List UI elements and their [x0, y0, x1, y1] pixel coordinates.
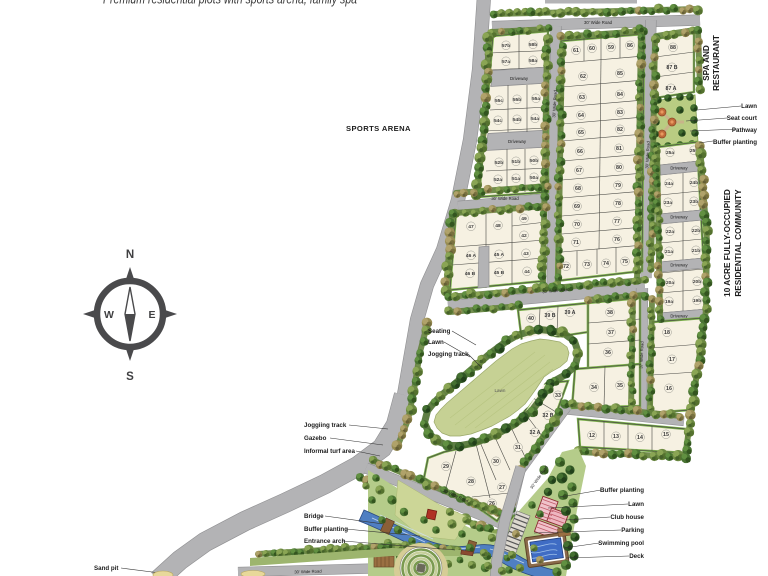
svg-text:46 A: 46 A [466, 253, 477, 259]
svg-text:24b: 24b [690, 180, 698, 186]
svg-text:73: 73 [584, 262, 590, 268]
svg-text:71: 71 [573, 240, 579, 246]
svg-text:Driveway: Driveway [670, 166, 688, 171]
svg-text:Bridge: Bridge [304, 513, 324, 520]
svg-text:19a: 19a [665, 299, 673, 305]
svg-text:20a: 20a [666, 280, 674, 286]
svg-text:SPA AND: SPA AND [702, 45, 711, 81]
svg-text:15: 15 [663, 432, 669, 438]
svg-text:RESIDENTIAL COMMUNITY: RESIDENTIAL COMMUNITY [734, 189, 743, 297]
svg-text:36: 36 [605, 350, 611, 356]
svg-text:54b: 54b [513, 117, 521, 123]
svg-text:50b: 50b [530, 158, 538, 164]
svg-text:80: 80 [616, 165, 622, 171]
svg-text:83: 83 [617, 110, 623, 116]
svg-text:45 A: 45 A [494, 252, 505, 258]
svg-text:55c: 55c [495, 98, 503, 104]
svg-text:Driveway: Driveway [510, 76, 529, 81]
svg-text:23b: 23b [690, 199, 698, 205]
svg-text:W: W [104, 309, 114, 321]
svg-text:SPORTS ARENA: SPORTS ARENA [346, 124, 411, 133]
svg-text:31: 31 [515, 445, 521, 451]
svg-text:22b: 22b [692, 228, 700, 234]
svg-text:48: 48 [495, 223, 501, 229]
svg-text:Club house: Club house [610, 514, 644, 521]
svg-text:Deck: Deck [629, 553, 644, 560]
svg-text:51a: 51a [512, 176, 520, 182]
svg-text:Driveway: Driveway [670, 314, 688, 319]
svg-text:16: 16 [666, 386, 672, 392]
svg-text:27: 27 [499, 485, 505, 491]
svg-text:22a: 22a [666, 229, 674, 235]
svg-text:13: 13 [613, 434, 619, 440]
svg-text:87 A: 87 A [666, 86, 677, 92]
svg-text:24a: 24a [665, 181, 673, 187]
svg-text:79: 79 [615, 183, 621, 189]
svg-text:51b: 51b [512, 159, 520, 165]
svg-text:62: 62 [580, 74, 586, 80]
svg-text:54a: 54a [531, 116, 539, 122]
svg-text:40: 40 [528, 316, 534, 322]
svg-text:Informal turf area: Informal turf area [304, 448, 355, 455]
svg-text:Seat court: Seat court [727, 115, 757, 122]
svg-text:78: 78 [615, 201, 621, 207]
svg-text:34: 34 [591, 385, 597, 391]
svg-text:28: 28 [468, 479, 474, 485]
svg-text:44: 44 [524, 269, 530, 275]
svg-text:Lawn: Lawn [495, 388, 506, 393]
svg-text:86: 86 [627, 43, 633, 49]
svg-text:58a: 58a [529, 58, 537, 64]
svg-text:63: 63 [579, 95, 585, 101]
svg-text:37' Wide Road: 37' Wide Road [639, 341, 645, 369]
svg-text:50a: 50a [530, 175, 538, 181]
svg-text:32 A: 32 A [530, 430, 541, 436]
svg-text:Joggiing track: Joggiing track [304, 422, 347, 429]
svg-text:85: 85 [617, 71, 623, 77]
svg-text:19b: 19b [693, 298, 701, 304]
svg-text:Lawn: Lawn [428, 339, 444, 346]
svg-text:Jogging track: Jogging track [428, 351, 469, 358]
svg-text:46 B: 46 B [465, 271, 476, 277]
svg-text:Swimming pool: Swimming pool [598, 540, 644, 547]
svg-text:Lawn: Lawn [741, 103, 757, 110]
svg-text:30' Wide Road: 30' Wide Road [584, 20, 613, 25]
svg-text:76: 76 [614, 237, 620, 243]
svg-text:55a: 55a [532, 96, 540, 102]
svg-text:38: 38 [607, 310, 613, 316]
svg-text:52a: 52a [494, 177, 502, 183]
svg-text:68: 68 [575, 186, 581, 192]
svg-text:Lawn: Lawn [628, 501, 644, 508]
svg-text:75: 75 [622, 259, 628, 265]
svg-text:29: 29 [443, 464, 449, 470]
svg-text:20b: 20b [693, 279, 701, 285]
svg-text:88: 88 [670, 45, 676, 51]
svg-text:59: 59 [608, 45, 614, 51]
svg-text:60: 60 [589, 46, 595, 52]
svg-text:Entrance arch: Entrance arch [304, 538, 345, 545]
svg-text:49: 49 [521, 216, 527, 222]
svg-text:30: 30 [493, 459, 499, 465]
svg-text:14: 14 [637, 435, 643, 441]
svg-text:Pathway: Pathway [732, 127, 758, 134]
svg-text:39 B: 39 B [544, 313, 555, 319]
svg-text:RESTAURANT: RESTAURANT [712, 35, 721, 91]
svg-text:E: E [148, 309, 155, 321]
svg-text:42: 42 [521, 233, 527, 239]
svg-text:67: 67 [576, 168, 582, 174]
svg-text:N: N [126, 249, 134, 261]
svg-text:66: 66 [577, 149, 583, 155]
svg-text:69: 69 [574, 204, 580, 210]
svg-text:23a: 23a [664, 200, 672, 206]
svg-text:57b: 57b [502, 43, 510, 49]
svg-text:Buffer planting: Buffer planting [304, 526, 348, 533]
svg-text:30' Wide Road: 30' Wide Road [294, 569, 322, 575]
svg-text:17: 17 [669, 357, 675, 363]
svg-text:37: 37 [608, 330, 614, 336]
svg-text:Parking: Parking [621, 527, 644, 534]
svg-text:Driveway: Driveway [508, 139, 527, 144]
svg-text:S: S [126, 371, 134, 383]
svg-text:47: 47 [468, 224, 474, 230]
svg-text:55b: 55b [513, 97, 521, 103]
svg-text:Premium residential plots with: Premium residential plots with sports ar… [103, 0, 357, 7]
svg-text:61: 61 [573, 48, 579, 54]
svg-text:77: 77 [614, 219, 620, 225]
svg-text:65: 65 [578, 130, 584, 136]
svg-text:45 B: 45 B [494, 270, 505, 276]
svg-text:87 B: 87 B [666, 65, 677, 71]
svg-text:Driveway: Driveway [670, 263, 688, 268]
svg-text:21a: 21a [665, 249, 673, 255]
svg-text:58b: 58b [529, 42, 537, 48]
svg-text:30' Wide Road: 30' Wide Road [491, 196, 519, 201]
svg-text:64: 64 [578, 113, 584, 119]
svg-text:70: 70 [574, 222, 580, 228]
svg-text:84: 84 [617, 92, 623, 98]
svg-text:43: 43 [523, 251, 529, 257]
svg-text:72: 72 [563, 264, 569, 270]
svg-text:74: 74 [603, 261, 609, 267]
svg-text:10 ACRE FULLY-OCCUPIED: 10 ACRE FULLY-OCCUPIED [723, 189, 732, 297]
svg-text:Seating: Seating [428, 328, 451, 335]
svg-text:35: 35 [617, 383, 623, 389]
svg-text:Buffer planting: Buffer planting [600, 487, 644, 494]
svg-text:21b: 21b [692, 248, 700, 254]
svg-text:57a: 57a [502, 59, 510, 65]
svg-text:18: 18 [664, 330, 670, 336]
svg-text:Gazebo: Gazebo [304, 435, 327, 442]
svg-text:39 A: 39 A [565, 310, 576, 316]
svg-text:33: 33 [555, 393, 561, 399]
svg-text:Sand pit: Sand pit [94, 565, 118, 572]
svg-text:Driveway: Driveway [670, 215, 688, 220]
svg-text:12: 12 [589, 433, 595, 439]
svg-text:54c: 54c [494, 118, 502, 124]
svg-text:82: 82 [617, 127, 623, 133]
svg-text:52b: 52b [495, 160, 503, 166]
svg-text:25a: 25a [666, 150, 674, 156]
svg-text:Buffer planting: Buffer planting [713, 139, 757, 146]
svg-text:81: 81 [616, 146, 622, 152]
